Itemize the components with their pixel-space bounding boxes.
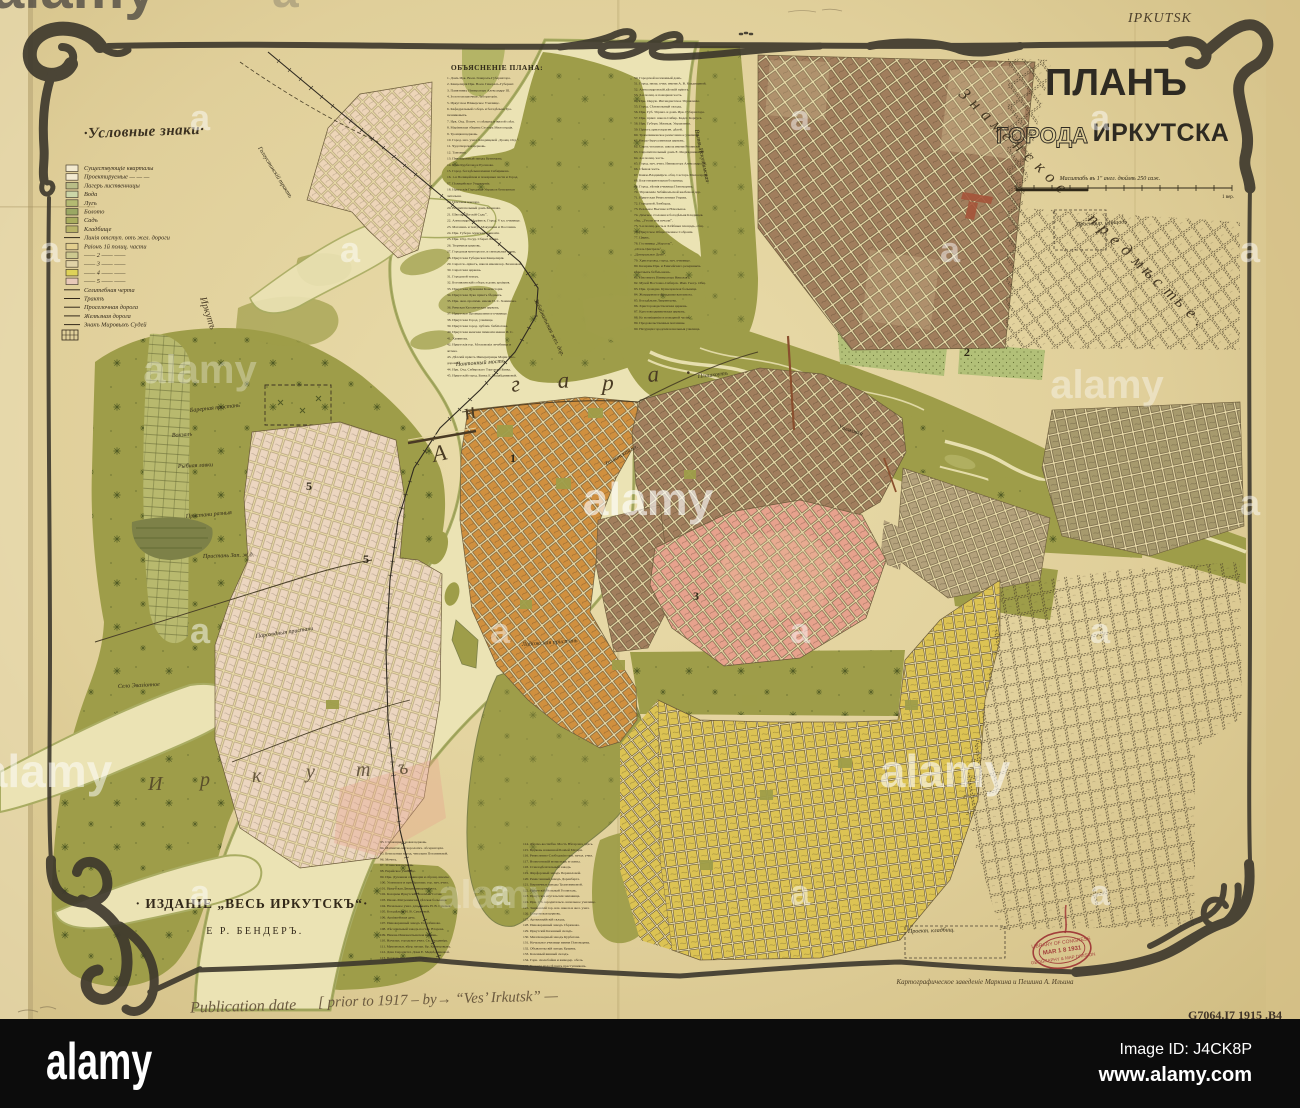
svg-text:52. Александровскiй дѣтскiй пр: 52. Александровскiй дѣтскiй прiютъ. [634,87,689,91]
svg-text:53. 3-я полиц. и пожарная част: 53. 3-я полиц. и пожарная часть. [634,93,682,97]
svg-text:42. Иркутскiя гор. Московскiя: 42. Иркутскiя гор. Московскiя лечебница … [447,343,511,347]
svg-text:129. Иркутскiй Казенный складъ: 129. Иркутскiй Казенный складъ. [523,929,573,933]
svg-text:Знакъ Мировыхъ Судей: Знакъ Мировыхъ Судей [84,322,147,329]
svg-text:96. Мечеть.: 96. Мечеть. [380,857,397,861]
svg-text:83. Ирк. граждан. Кузнецовская: 83. Ирк. граждан. Кузнецовская больница. [634,287,697,291]
svg-text:57. Ирк. прiют. школа Сибир. К: 57. Ирк. прiют. школа Сибир. Кадет. Корп… [634,116,702,120]
svg-text:54. Ирк. Окруж. Интендантское: 54. Ирк. Окруж. Интендантское Управленiе… [634,99,700,103]
svg-text:20. Воспитательный домъ Базано: 20. Воспитательный домъ Базанова. [447,206,501,210]
svg-text:a: a [190,97,211,138]
svg-text:alamy: alamy [46,1032,152,1091]
svg-text:102. Казармы Иркутской Казачье: 102. Казармы Иркутской Казачьей Сотни. [380,892,442,896]
svg-text:a: a [1240,229,1261,270]
svg-text:63. Сиропитательный домъ Е. Ме: 63. Сиропитательный домъ Е. Медвѣдниково… [634,150,704,154]
svg-text:alamy: alamy [438,873,552,917]
svg-text:15. Город. богадѣльня имени Си: 15. Город. богадѣльня имени Сибирякова. [447,169,509,173]
svg-text:читальня.: читальня. [447,194,462,198]
svg-text:3: 3 [693,589,699,603]
svg-text:2: 2 [964,345,970,359]
svg-text:alamy: alamy [880,745,1011,797]
svg-text:40. Иркутская женская гимназiя: 40. Иркутская женская гимназiя имени И. … [447,330,513,334]
svg-text:a: a [790,872,811,913]
svg-text:118. Стеклодѣлательный заводъ.: 118. Стеклодѣлательный заводъ. [523,865,571,869]
svg-text:Желѣзная дорога: Желѣзная дорога [83,313,131,320]
svg-text:89. Продовольственные магазины: 89. Продовольственные магазины. [634,321,685,325]
svg-text:27. Городская метеоролог. и си: 27. Городская метеоролог. и сигнальная с… [447,250,516,254]
svg-text:34. Иркутская Лука прiютъ бѣдн: 34. Иркутская Лука прiютъ бѣдныхъ. [447,293,502,297]
svg-text:1. Домъ Ирк. Воен. Генералъ-Гу: 1. Домъ Ирк. Воен. Генералъ-Губернатора. [447,76,511,80]
svg-text:5: 5 [306,479,312,493]
svg-text:2. Канцелярiя Ирк. Воен. Генер: 2. Канцелярiя Ирк. Воен. Генералъ-Губерн… [447,82,514,86]
svg-text:59. Прiютъ аристократич. дѣтей: 59. Прiютъ аристократич. дѣтей. [634,127,683,131]
svg-text:73. Реальное Высшее и Начально: 73. Реальное Высшее и Начальное. [634,207,686,211]
svg-text:33. Иркутская Духовная Консист: 33. Иркутская Духовная Консисторiя. [447,287,503,291]
svg-text:—— 3 —— ——: —— 3 —— —— [83,261,126,268]
svg-text:ОБЪЯСНЕНIЕ ПЛАНА:: ОБЪЯСНЕНIЕ ПЛАНА: [451,63,543,72]
svg-text:67. Князе-Владимiрск. общ. Сес: 67. Князе-Владимiрск. общ. Сестеръ Милос… [634,173,708,177]
svg-text:a: a [1090,97,1111,138]
svg-text:Проселочная дорога: Проселочная дорога [83,304,138,311]
svg-text:133. Казенный винный складъ.: 133. Казенный винный складъ. [523,952,569,956]
svg-text:128. Пивоваренный заводъ Сѣрюк: 128. Пивоваренный заводъ Сѣрюкова. [523,923,580,927]
svg-text:а: а [647,361,660,387]
svg-text:26. Тюремная церковь.: 26. Тюремная церковь. [447,243,481,247]
svg-text:68. Благотворительная больница: 68. Благотворительная больница. [634,179,683,183]
svg-text:a: a [40,229,61,270]
svg-text:24. Ирк. Губерн. мужская гимна: 24. Ирк. Губерн. мужская гимназiя. [447,231,500,235]
svg-text:8. Марiинская община Сестеръ М: 8. Марiинская община Сестеръ Милосердiя. [447,126,513,130]
svg-text:132. Обывательскiй заводъ Крыи: 132. Обывательскiй заводъ Крыива. [523,946,576,950]
svg-text:ГОРОДА: ГОРОДА [996,123,1088,148]
svg-text:37. Иркутское Промышленное учи: 37. Иркутское Промышленное училище. [447,312,508,316]
svg-text:36. Римская Католическая церко: 36. Римская Католическая церковь. [447,305,499,309]
svg-text:a: a [790,610,811,651]
svg-text:31. Городской театръ.: 31. Городской театръ. [447,274,479,278]
svg-text:6. Кафедральный соборъ и богад: 6. Кафедральный соборъ и богадѣльня Тра- [447,107,513,111]
svg-text:64. 4-я полиц. часть.: 64. 4-я полиц. часть. [634,156,664,160]
svg-text:Е Р. БЕНДЕРЪ.: Е Р. БЕНДЕРЪ. [206,926,304,937]
svg-text:97. Успенская церковь.: 97. Успенская церковь. [380,863,414,867]
svg-text:85. Богадѣльня Лаврентьева.: 85. Богадѣльня Лаврентьева. [634,298,677,302]
svg-text:93. Строющаяся новая церковь.: 93. Строющаяся новая церковь. [380,840,427,844]
svg-text:—— 2 —— ——: —— 2 —— —— [83,252,126,259]
svg-text:alamy: alamy [1050,363,1164,407]
svg-text:77. Циркъ.: 77. Циркъ. [634,236,650,240]
svg-text:аптека.: аптека. [447,349,458,353]
svg-text:5: 5 [363,552,369,566]
svg-text:50. Городской ночлежный домъ.: 50. Городской ночлежный домъ. [634,76,682,80]
svg-text:a: a [1090,610,1111,651]
svg-text:17. Полицейское Управленiе.: 17. Полицейское Управленiе. [447,181,490,185]
svg-text:71. Иркутская Ремесленная Упра: 71. Иркутская Ремесленная Управа. [634,196,687,200]
svg-text:доровны.: доровны. [447,361,461,365]
svg-text:a: a [490,610,511,651]
svg-text:90. Натурщiя городскiя начальн: 90. Натурщiя городскiя начальныя училища… [634,327,700,331]
svg-text:134. Горн. свалобойня и живоде: 134. Горн. свалобойня и живодер. обозъ. [523,958,583,962]
svg-text:11. Чудотворская церковь.: 11. Чудотворская церковь. [447,144,486,148]
svg-text:пезниковыхъ.: пезниковыхъ. [447,113,467,117]
svg-text:130. Миллiонерный заводъ Курба: 130. Миллiонерный заводъ Курбатова. [523,935,580,939]
svg-text:Садъ: Садъ [84,217,98,224]
svg-text:1 вер.: 1 вер. [1222,195,1234,200]
svg-text:30. Сиротская церковь.: 30. Сиротская церковь. [447,268,481,272]
svg-text:7. Ирк. Отд. Попеч. о слѣпыхъ: 7. Ирк. Отд. Попеч. о слѣпыхъ и жилой сл… [447,119,515,123]
svg-text:ПЛАНЪ: ПЛАНЪ [1045,62,1187,104]
svg-text:116. Ремесленно-Слободскiя гор: 116. Ремесленно-Слободскiя горн. начал. … [523,854,593,858]
svg-text:115. Церковь названной Божiей: 115. Церковь названной Божiей Матери. [523,848,583,852]
svg-text:81. Институтъ Императора Никол: 81. Институтъ Императора Николая I. [634,276,690,280]
svg-text:45. Иркутскiй город. Банкъ Е.: 45. Иркутскiй город. Банкъ Е. Медвѣднико… [447,374,517,378]
svg-text:76. Иркутское Общественное Соб: 76. Иркутское Общественное Собранiе. [634,230,693,234]
svg-text:Селитебная черта: Селитебная черта [84,287,135,294]
svg-text:1: 1 [510,451,516,465]
svg-text:60. Трапезниковское ремесленно: 60. Трапезниковское ремесленное училище. [634,133,700,137]
svg-text:ИРКУТСКА: ИРКУТСКА [1093,119,1230,147]
svg-text:110. Начальн. городское учил.: 110. Начальн. городское учил. Св. Владим… [380,939,448,943]
svg-text:66. Сѣнная часть.: 66. Сѣнная часть. [634,167,660,171]
svg-text:39. Иркутская город. публич. б: 39. Иркутская город. публич. библiотека. [447,324,508,328]
svg-text:13. Пивоваренный заводъ Кузнец: 13. Пивоваренный заводъ Кузнецова. [447,157,502,161]
svg-text:103. Ивано-Матренинская дѣтска: 103. Ивано-Матренинская дѣтская больница… [380,898,447,902]
svg-text:32. Богоявленскiй соборъ и дом: 32. Богоявленскiй соборъ и домъ архiерея… [447,281,510,285]
svg-text:43. Дѣтскiй прiютъ Императрицы: 43. Дѣтскiй прiютъ Императрицы Марiи Фео… [447,355,516,359]
svg-text:23. Магазинъ и театръ Макушина: 23. Магазинъ и театръ Макушина и Посохин… [447,225,516,229]
svg-text:55. Город. Сѣнокольный складъ.: 55. Город. Сѣнокольный складъ. [634,105,682,109]
svg-text:19. Почтовая контора.: 19. Почтовая контора. [447,200,480,204]
svg-text:107. Пивоваренный заводъ Голдо: 107. Пивоваренный заводъ Голдобинова. [380,921,441,925]
svg-text:a: a [790,97,811,138]
svg-text:ъ: ъ [398,757,408,779]
svg-text:Лугъ: Лугъ [83,200,98,207]
svg-text:3. Памятникъ Императору Алекса: 3. Памятникъ Императору Александру III. [447,88,510,92]
svg-text:Лагерь лиственницы: Лагерь лиственницы [83,182,141,189]
svg-text:12. Таможня.: 12. Таможня. [447,150,467,154]
svg-text:28. Иркутская Губернская Канце: 28. Иркутская Губернская Канцелярiя. [447,256,504,260]
svg-text:80. Казармы Ирк. и Енисейскаго: 80. Казармы Ирк. и Енисейскаго резервных… [634,264,701,268]
svg-text:14. Бани Курбатова и Русанова.: 14. Бани Курбатова и Русанова. [447,163,494,167]
svg-text:а: а [557,367,570,393]
svg-text:Кладбище: Кладбище [83,226,112,233]
svg-text:94. Магнитно-метеорологич. обс: 94. Магнитно-метеорологич. обсерваторiя. [380,846,444,850]
svg-text:alamy: alamy [0,0,156,21]
svg-text:38. Иркутская Город. училище.: 38. Иркутская Город. училище. [447,318,493,322]
svg-text:Вода: Вода [84,191,97,198]
svg-text:106. Архiерейская дача.: 106. Архiерейская дача. [380,915,415,919]
svg-text:51. Город. низш. учил. имени А: 51. Город. низш. учил. имени А. В. Клади… [634,82,707,86]
svg-text:a: a [190,872,211,913]
svg-text:69. Город. лѣтнiя училища Поно: 69. Город. лѣтнiя училища Пономарева. [634,184,693,188]
svg-text:58. Ирк. Губерн. Мясныя. Управ: 58. Ирк. Губерн. Мясныя. Управленiя. [634,122,691,126]
svg-text:alamy: alamy [583,473,714,525]
svg-text:22. Александро-Марiинск. Город: 22. Александро-Марiинск. Город. V кл. уч… [447,219,520,223]
svg-text:117. Вознесенскiй монастырь и: 117. Вознесенскiй монастырь и скиты. [523,859,581,863]
svg-text:65. Город. нач. учил. Императо: 65. Город. нач. учил. Императора Алексан… [634,162,707,166]
svg-text:131. Начальное училище имени П: 131. Начальное училище имени Пономарева. [523,941,590,945]
svg-text:р: р [600,370,614,395]
svg-text:82. Музей Восточно-Сибирск. Им: 82. Музей Восточно-Сибирск. Имп. Геогр. … [634,281,706,285]
svg-text:Линiя отступ. отъ жел. дороги: Линiя отступ. отъ жел. дороги [83,235,170,242]
svg-text:Картографическое заведенiе Мар: Картографическое заведенiе Маркина и Пеш… [895,978,1074,986]
svg-text:т: т [356,759,370,781]
svg-text:25. Ирк. Отд. Госуд. Сберег. Б: 25. Ирк. Отд. Госуд. Сберег. Банка. [447,237,499,241]
svg-text:41. Хаминова.: 41. Хаминова. [447,336,468,340]
svg-text:61. Входо-Iерусалимская церков: 61. Входо-Iерусалимская церковь. [634,139,685,143]
svg-text:a: a [1090,872,1111,913]
svg-text:.: . [686,354,692,379]
svg-text:18. Иркутскiя Городская Управа: 18. Иркутскiя Городская Управа и безплат… [447,188,515,192]
svg-text:70. Управленiе Забайкальской ж: 70. Управленiе Забайкальской желѣзной до… [634,190,701,194]
svg-text:5. Иркутское Юнкерское Училище: 5. Иркутское Юнкерское Училище. [447,101,500,105]
svg-text:112. Дача Сиропитат. Дома Е. М: 112. Дача Сиропитат. Дома Е. Медвѣдников… [380,950,450,954]
svg-text:alamy: alamy [143,348,257,392]
svg-text:98. Еврейское училище.: 98. Еврейское училище. [380,869,416,873]
svg-text:alamy: alamy [0,745,113,797]
svg-text:86. Христорождественская церко: 86. Христорождественская церковь. [634,304,688,308]
svg-text:79. Христорожд. город. нач. уч: 79. Христорожд. город. нач. училище. [634,258,691,262]
svg-text:87. Крестовоздвиженская церков: 87. Крестовоздвиженская церковь. [634,310,686,314]
svg-text:109. Нижне-Иннокентьевская цер: 109. Нижне-Иннокентьевская церковь. [380,933,438,937]
svg-text:—— 5 —— ——: —— 5 —— —— [83,278,126,285]
svg-text:105. Богадѣльня Н. В. Сукачево: 105. Богадѣльня Н. В. Сукачевой. [380,910,430,914]
svg-text:111. Мукомольн. вѣер. мельн. Б: 111. Мукомольн. вѣер. мельн. Бр. Кузнецо… [380,944,451,948]
svg-text:127. Артиллерiйскiй складъ.: 127. Артиллерiйскiй складъ. [523,917,565,921]
svg-text:a: a [1240,482,1261,523]
svg-text:р: р [198,769,210,791]
svg-text:IРKUTSK: IРKUTSK [1127,11,1192,26]
svg-text:a: a [340,229,361,270]
svg-text:www.alamy.com: www.alamy.com [1098,1064,1252,1086]
svg-text:56. Ирк. Губ. Управл. и домъ И: 56. Ирк. Губ. Управл. и домъ Ирк. Губерн… [634,110,705,114]
svg-text:88. Ко возмiщенiю и пожарной ч: 88. Ко возмiщенiю и пожарной части. [634,315,690,319]
svg-text:a: a [940,229,961,270]
svg-text:—— 4 —— ——: —— 4 —— —— [83,269,126,276]
svg-text:95. Безплатная народ. читальня: 95. Безплатная народ. читальня Потанинск… [380,852,448,856]
svg-text:a: a [272,0,299,18]
svg-text:Существующiе кварталы: Существующiе кварталы [84,165,154,172]
svg-text:101. Иркутская Дисциплинарная: 101. Иркутская Дисциплинарная рота. [380,886,437,890]
svg-text:у: у [304,761,315,783]
svg-text:72. Городской Ломбардъ.: 72. Городской Ломбардъ. [634,201,671,205]
svg-text:114. Дѣтско-воспитан. Мостъ Вѣ: 114. Дѣтско-воспитан. Мостъ Вѣтерлаго зд… [523,842,593,846]
svg-text:· ИЗДАНIЕ „ВЕСЬ ИРКУТСКЪ“·: · ИЗДАНIЕ „ВЕСЬ ИРКУТСКЪ“· [136,896,369,911]
svg-text:44. Ирк. Отд. Сибирскаго Торго: 44. Ирк. Отд. Сибирскаго Торговаго Банка… [447,367,511,371]
svg-text:И: И [147,773,164,795]
svg-text:35. Ирк. жен. прогимн. имени И: 35. Ирк. жен. прогимн. имени И. С. Хамин… [447,299,517,303]
svg-text:a: a [190,610,211,651]
svg-text:Publication date: Publication date [189,997,297,1017]
svg-text:Image ID: J4CK8P: Image ID: J4CK8P [1120,1041,1253,1058]
svg-text:к: к [252,765,262,787]
svg-text:62. Сирот.-воспитат. школа име: 62. Сирот.-воспитат. школа имени Росинск… [634,144,700,148]
svg-text:пѣхотныхъ батальоновъ.: пѣхотныхъ батальоновъ. [634,270,671,274]
svg-text:84. Жандармское фельдшерская ш: 84. Жандармское фельдшерская школа. [634,293,693,297]
svg-text:Масштабъ въ 1″ англ. дюймѣ 250: Масштабъ въ 1″ англ. дюймѣ 250 саж. [1059,175,1161,182]
svg-text:Трактъ: Трактъ [84,296,105,303]
svg-text:16. 1-я Полицейская и пожарныя: 16. 1-я Полицейская и пожарныя части и Г… [447,175,518,179]
svg-text:Болото: Болото [83,209,104,216]
svg-text:Раiонъ 1й полиц. части: Раiонъ 1й полиц. части [83,243,146,250]
svg-text:Проектируемые — — —: Проектируемые — — — [83,174,150,181]
svg-text:108. Лѣсопильный заводъ постав: 108. Лѣсопильный заводъ постав. Второва. [380,927,444,931]
svg-text:4. Золотосплавочная Лабораторi: 4. Золотосплавочная Лабораторiя. [447,95,498,99]
svg-text:9. Троицкая церковь.: 9. Троицкая церковь. [447,132,478,136]
svg-text:74. Дамское столовая и богадѣл: 74. Дамское столовая и богадѣльня Кладищ… [634,213,703,217]
